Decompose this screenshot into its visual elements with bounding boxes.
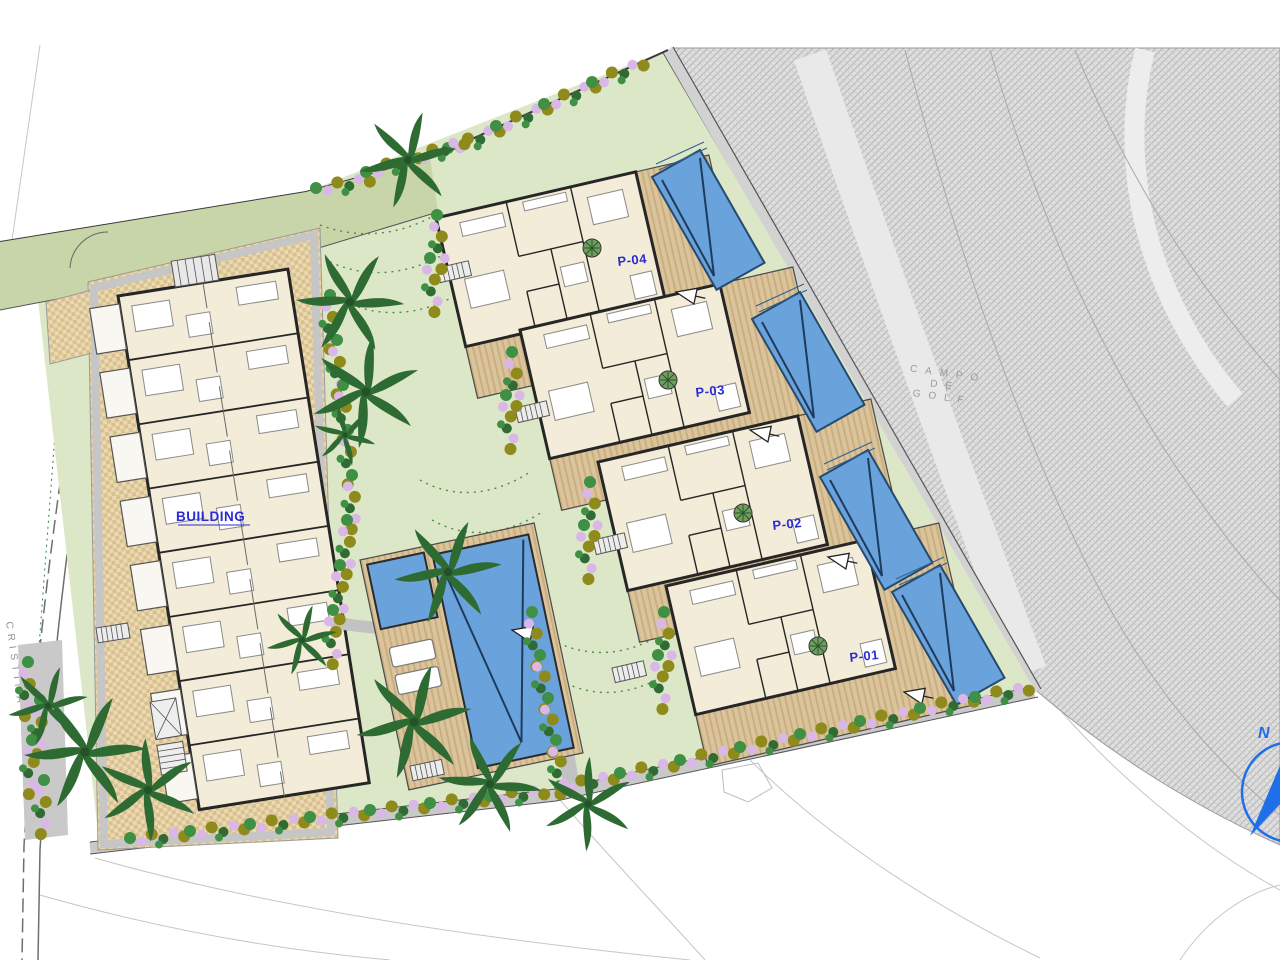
plot-label-p04: P-04 (617, 251, 648, 269)
north-label: N (1258, 725, 1270, 742)
kids-pool (367, 553, 437, 630)
site-plan-page: CRISTINA CAMPO DE GOLF (0, 0, 1280, 960)
building-label: BUILDING (176, 509, 245, 524)
site-plan-canvas: CRISTINA CAMPO DE GOLF (0, 0, 1280, 960)
plot-label-p01: P-01 (849, 647, 880, 665)
plot-label-p02: P-02 (772, 515, 803, 533)
plot-label-p03: P-03 (695, 382, 726, 400)
